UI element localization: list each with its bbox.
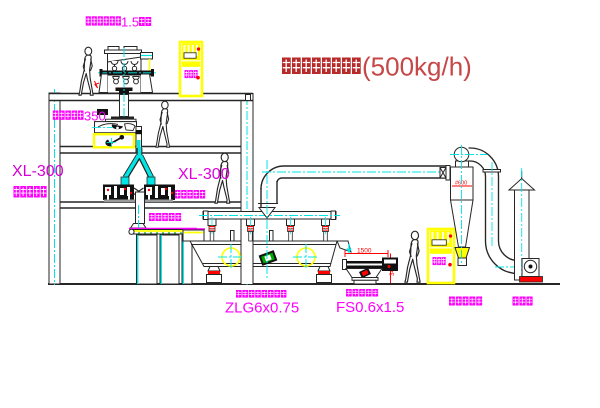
svg-text:(500kg/h): (500kg/h) (362, 52, 472, 82)
svg-text:1500: 1500 (357, 248, 372, 255)
svg-text:1.5: 1.5 (121, 15, 139, 30)
svg-text:XL-300: XL-300 (178, 166, 230, 183)
svg-text:ZLG6x0.75: ZLG6x0.75 (225, 300, 299, 317)
svg-text:FS0.6x1.5: FS0.6x1.5 (336, 299, 404, 316)
svg-text:350: 350 (84, 109, 106, 124)
svg-text:XL-300: XL-300 (12, 163, 64, 180)
